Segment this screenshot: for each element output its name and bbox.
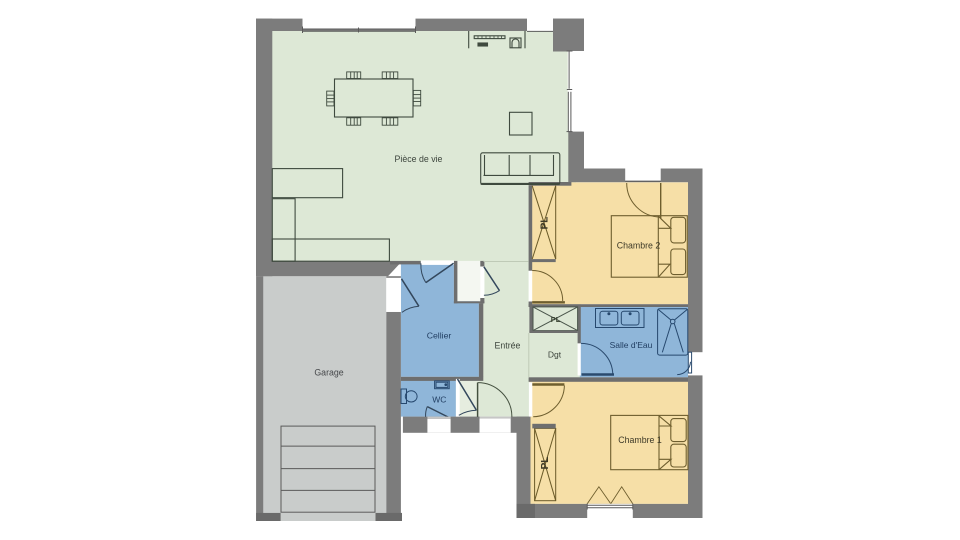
svg-text:WC: WC (432, 395, 446, 405)
svg-text:Dgt: Dgt (548, 350, 562, 360)
svg-text:Pièce de vie: Pièce de vie (395, 154, 443, 164)
svg-text:Chambre 1: Chambre 1 (618, 435, 662, 445)
svg-text:Garage: Garage (314, 368, 343, 378)
svg-text:Entrée: Entrée (495, 341, 521, 351)
svg-text:Chambre 2: Chambre 2 (617, 241, 661, 251)
svg-text:Salle d'Eau: Salle d'Eau (610, 340, 653, 350)
svg-text:PL: PL (540, 457, 551, 470)
svg-text:Cellier: Cellier (427, 331, 452, 341)
svg-text:PL: PL (551, 315, 561, 324)
svg-text:PL: PL (540, 217, 551, 230)
